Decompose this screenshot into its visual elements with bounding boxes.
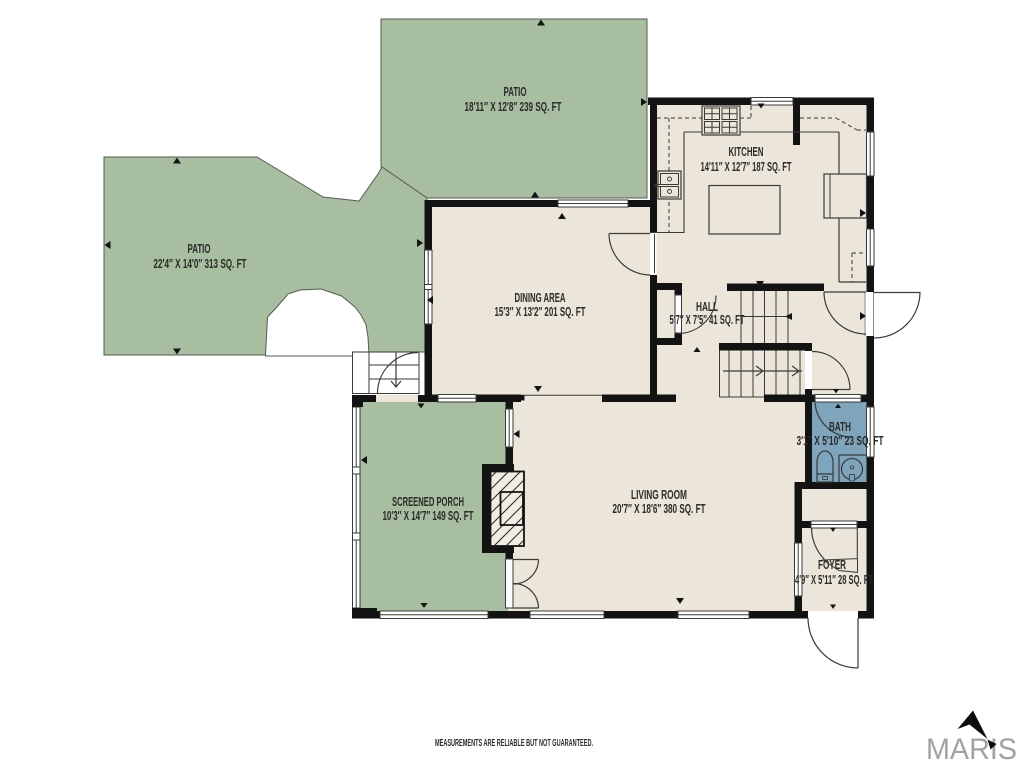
svg-text:KITCHEN: KITCHEN [729,145,764,159]
svg-text:3′1″ X 5′10″ 23 SQ. FT: 3′1″ X 5′10″ 23 SQ. FT [797,433,884,448]
svg-text:PATIO: PATIO [504,85,527,99]
svg-text:FOYER: FOYER [818,558,846,572]
svg-text:SCREENED PORCH: SCREENED PORCH [392,495,464,509]
svg-text:4′9″ X 5′11″ 28 SQ. FT: 4′9″ X 5′11″ 28 SQ. FT [795,572,873,587]
svg-text:MEASUREMENTS ARE RELIABLE BUT: MEASUREMENTS ARE RELIABLE BUT NOT GUARAN… [435,738,593,749]
svg-text:20′7″ X 18′6″ 380 SQ. FT: 20′7″ X 18′6″ 380 SQ. FT [613,501,706,516]
svg-text:22′4″ X 14′0″ 313 SQ. FT: 22′4″ X 14′0″ 313 SQ. FT [154,256,247,271]
svg-text:10′3″ X 14′7″ 149 SQ. FT: 10′3″ X 14′7″ 149 SQ. FT [383,508,474,523]
svg-text:PATIO: PATIO [188,242,211,256]
svg-text:LIVING ROOM: LIVING ROOM [631,488,687,502]
svg-text:BATH: BATH [829,420,851,434]
svg-text:MARIS: MARIS [926,733,1017,766]
svg-text:18′11″ X 12′8″ 239 SQ. FT: 18′11″ X 12′8″ 239 SQ. FT [465,99,562,114]
svg-text:5′7″ X 7′5″ 41 SQ. FT: 5′7″ X 7′5″ 41 SQ. FT [670,312,745,327]
svg-text:15′3″ X 13′2″ 201 SQ. FT: 15′3″ X 13′2″ 201 SQ. FT [495,304,586,319]
svg-text:14′11″ X 12′7″ 187 SQ. FT: 14′11″ X 12′7″ 187 SQ. FT [701,159,792,174]
svg-text:DINING AREA: DINING AREA [515,291,566,305]
